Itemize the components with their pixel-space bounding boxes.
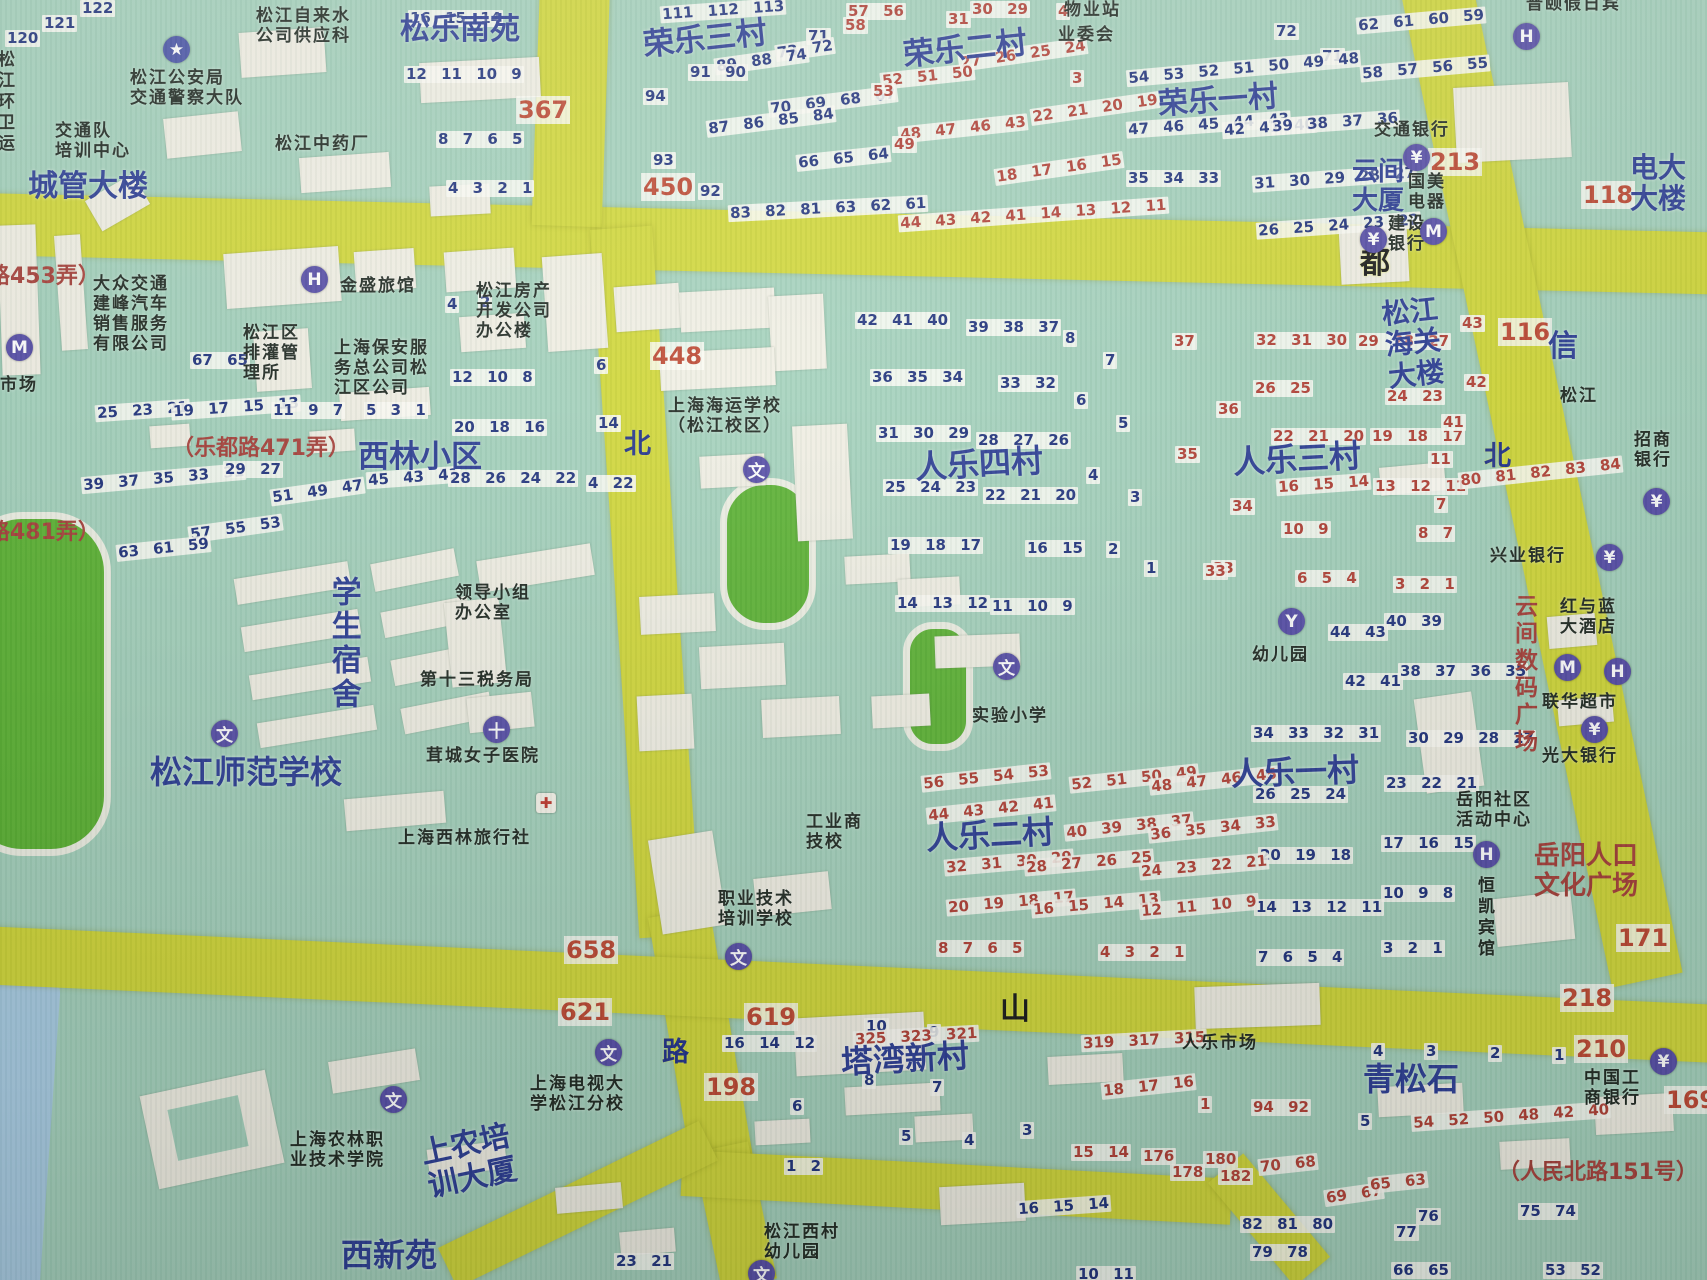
building-number: 33 32 bbox=[998, 375, 1058, 392]
building-number: 5 bbox=[1358, 1113, 1372, 1130]
lane-label: 路481弄） bbox=[0, 520, 100, 545]
street-number: 210 bbox=[1574, 1035, 1628, 1063]
building-number: 1 2 bbox=[784, 1158, 823, 1175]
building-number: 32 31 30 bbox=[1254, 332, 1349, 349]
building-number: 11 9 7 bbox=[271, 402, 345, 419]
facility-label: 职业技术 培训学校 bbox=[718, 889, 794, 929]
facility-label: 松江房产 开发公司 办公楼 bbox=[476, 281, 552, 341]
building-number: 41 bbox=[1441, 414, 1466, 431]
building bbox=[637, 694, 695, 752]
building-number: 37 bbox=[1172, 333, 1197, 350]
building-number: 30 29 bbox=[970, 1, 1030, 18]
bank-icon: ¥ bbox=[1650, 1048, 1677, 1075]
place-label: 西新苑 bbox=[341, 1238, 437, 1274]
building-number: 94 92 bbox=[1251, 1099, 1311, 1116]
road-name-label: 路 bbox=[662, 1030, 689, 1069]
building-number: 34 bbox=[1230, 498, 1255, 515]
bank-icon: ¥ bbox=[1360, 226, 1387, 253]
place-label: 塔湾新村 bbox=[840, 1039, 970, 1081]
place-label: 信 bbox=[1548, 330, 1578, 364]
building-number: 15 14 bbox=[1071, 1144, 1131, 1161]
building-number: 43 bbox=[1460, 315, 1485, 332]
facility-label: 松江环卫运 bbox=[0, 50, 14, 155]
street-number: 619 bbox=[744, 1003, 798, 1031]
street-number: 198 bbox=[704, 1073, 758, 1101]
facility-label: 松江区 排灌管 理所 bbox=[243, 323, 300, 383]
building-number: 4 3 2 1 bbox=[1098, 944, 1186, 961]
building bbox=[648, 831, 727, 935]
hotel-icon: H bbox=[1473, 841, 1500, 868]
building-number: 49 bbox=[892, 136, 917, 153]
building-number: 36 bbox=[1216, 401, 1241, 418]
facility-label: 市场 bbox=[0, 375, 38, 395]
place-label: 松江 海关 大楼 bbox=[1380, 293, 1446, 392]
building-number: 8 7 6 5 bbox=[936, 940, 1024, 957]
building-number: 48 47 46 43 bbox=[897, 113, 1028, 143]
building-number: 7 bbox=[1434, 496, 1448, 513]
building-number: 3 bbox=[1128, 489, 1142, 506]
place-label: 人乐三村 bbox=[1232, 439, 1362, 481]
building-number: 18 17 16 15 bbox=[993, 151, 1124, 185]
building-number: 4 bbox=[1371, 1043, 1385, 1060]
hotel-icon: H bbox=[301, 266, 328, 293]
facility-label: 红与蓝 大酒店 bbox=[1560, 597, 1617, 637]
building-number: 4 bbox=[962, 1132, 976, 1149]
building-number: 20 18 16 bbox=[452, 419, 547, 436]
facility-label: 领导小组 办公室 bbox=[455, 583, 531, 623]
building-number: 56 55 54 53 bbox=[920, 762, 1051, 792]
place-label: 电大 大楼 bbox=[1630, 152, 1686, 215]
building-number: 3 2 1 bbox=[1381, 940, 1445, 957]
facility-label: 恒凯宾馆 bbox=[1474, 876, 1494, 960]
building-number: 7 bbox=[1103, 352, 1117, 369]
building-number: 93 bbox=[651, 152, 676, 169]
facility-label: 国美 电器 bbox=[1408, 172, 1446, 212]
kindergarten-icon: Y bbox=[1278, 608, 1305, 635]
building-number: 76 bbox=[1416, 1208, 1441, 1225]
building-number: 16 14 12 bbox=[722, 1035, 817, 1052]
building-number: 14 13 12 bbox=[895, 595, 990, 612]
building-number: 4 bbox=[445, 296, 459, 313]
building-number: 14 13 12 11 bbox=[1254, 899, 1384, 916]
building-number: 19 18 17 bbox=[888, 537, 983, 554]
metro-icon: M bbox=[6, 334, 33, 361]
building-number: 53 52 bbox=[1543, 1262, 1603, 1279]
building-number: 7 6 5 4 bbox=[1256, 949, 1344, 966]
building bbox=[163, 111, 242, 159]
building-number: 70 68 bbox=[1257, 1153, 1318, 1176]
building-number: 91 90 bbox=[688, 64, 748, 81]
building-number: 75 74 bbox=[1518, 1203, 1578, 1220]
facility-label: 上海西林旅行社 bbox=[398, 828, 531, 848]
building bbox=[614, 283, 682, 332]
building-number: 51 49 47 bbox=[269, 476, 365, 506]
facility-label: 金盛旅馆 bbox=[340, 276, 416, 296]
culture-school-icon: 文 bbox=[993, 653, 1020, 680]
facility-label: 上海电视大 学松江分校 bbox=[530, 1074, 625, 1114]
building-number: 11 bbox=[1428, 451, 1453, 468]
road-name-label: 北 bbox=[624, 422, 651, 461]
building-number: 4 3 2 1 bbox=[446, 180, 534, 197]
street-number: 169 bbox=[1664, 1086, 1707, 1114]
facility-label: 松江自来水 公司供应科 bbox=[256, 6, 351, 46]
hospital-icon: 十 bbox=[483, 716, 510, 743]
street-number: 218 bbox=[1560, 984, 1614, 1012]
building-number: 121 bbox=[42, 15, 77, 32]
street-number: 118 bbox=[1581, 181, 1635, 209]
building-number: 6 5 4 bbox=[1295, 570, 1359, 587]
place-label: 荣乐二村 bbox=[902, 26, 1029, 73]
building-number: 3 2 1 bbox=[1393, 576, 1457, 593]
building-number: 17 16 15 bbox=[1381, 835, 1476, 852]
building bbox=[871, 694, 931, 729]
place-label: 松江师范学校 bbox=[150, 755, 342, 791]
place-label: 青松石 bbox=[1363, 1062, 1459, 1098]
facility-label: 联华超市 bbox=[1542, 692, 1618, 712]
lane-label: 路453弄） bbox=[0, 264, 100, 289]
bank-icon: ¥ bbox=[1581, 716, 1608, 743]
culture-school-icon: 文 bbox=[748, 1260, 775, 1280]
building-number: 20 19 18 bbox=[1258, 847, 1353, 864]
place-label: 城管大楼 bbox=[28, 170, 148, 204]
building bbox=[1194, 983, 1320, 1029]
building-number: 67 65 bbox=[190, 352, 250, 369]
building bbox=[792, 424, 853, 542]
building-number: 1 bbox=[1552, 1047, 1566, 1064]
facility-label: 业委会 bbox=[1058, 25, 1115, 45]
building-number: 58 bbox=[843, 17, 868, 34]
building-number: 92 bbox=[698, 183, 723, 200]
building-number: 63 61 59 bbox=[115, 535, 211, 561]
building-number: 2 bbox=[1106, 541, 1120, 558]
building-number: 4 22 bbox=[586, 475, 636, 492]
facility-label: 松江 bbox=[1560, 386, 1598, 406]
facility-label: 上海农林职 业技术学院 bbox=[290, 1130, 385, 1170]
building-number: 65 63 bbox=[1367, 1171, 1428, 1194]
building-number: 13 12 11 bbox=[1373, 478, 1468, 495]
street-number: 621 bbox=[558, 998, 612, 1026]
facility-label: 物业站 bbox=[1064, 0, 1121, 20]
building-number: 2 bbox=[1488, 1045, 1502, 1062]
building-number: 122 bbox=[80, 0, 115, 17]
street-number: 116 bbox=[1498, 318, 1552, 346]
building-number: 5 bbox=[899, 1128, 913, 1145]
building-number: 8 7 bbox=[1416, 525, 1455, 542]
building bbox=[844, 1083, 940, 1116]
building-number: 23 21 bbox=[614, 1253, 674, 1270]
building-number: 10 9 8 bbox=[1381, 885, 1455, 902]
building-number: 10 11 bbox=[1076, 1266, 1136, 1280]
building-number: 72 bbox=[1274, 23, 1299, 40]
building bbox=[679, 288, 776, 333]
building-number: 44 43 bbox=[1328, 624, 1388, 641]
facility-label: 招商 银行 bbox=[1634, 430, 1672, 470]
building-number: 1 bbox=[1144, 560, 1158, 577]
building-number: 182 bbox=[1218, 1168, 1253, 1185]
bank-icon: ¥ bbox=[1596, 544, 1623, 571]
building bbox=[699, 643, 786, 689]
lane-label: （乐都路471弄） bbox=[172, 436, 350, 461]
building bbox=[344, 791, 446, 832]
police-badge-icon: ★ bbox=[163, 36, 190, 63]
building-number: 31 30 29 bbox=[876, 425, 971, 442]
culture-school-icon: 文 bbox=[595, 1039, 622, 1066]
sports-field-west bbox=[0, 512, 111, 856]
building bbox=[370, 548, 459, 592]
building-number: 40 39 bbox=[1384, 613, 1444, 630]
building-number: 5 bbox=[1116, 415, 1130, 432]
street-number: 658 bbox=[564, 936, 618, 964]
street-number: 448 bbox=[650, 342, 704, 370]
building-number: 94 bbox=[643, 88, 668, 105]
facility-label: 实验小学 bbox=[972, 706, 1048, 726]
lane-label: （人民北路151号） bbox=[1498, 1160, 1698, 1185]
facility-label: 松江公安局 交通警察大队 bbox=[130, 68, 244, 108]
facility-label: 上海海运学校 （松江校区） bbox=[668, 396, 782, 436]
building bbox=[768, 294, 827, 372]
facility-label: 普颐假日宾 bbox=[1526, 0, 1621, 14]
culture-school-icon: 文 bbox=[380, 1086, 407, 1113]
culture-school-icon: 文 bbox=[211, 720, 238, 747]
building-number: 3 bbox=[1070, 70, 1084, 87]
building-number: 82 81 80 bbox=[1240, 1216, 1335, 1233]
building-number: 35 bbox=[1175, 446, 1200, 463]
building bbox=[754, 1119, 810, 1146]
building-number: 33 bbox=[1203, 563, 1228, 580]
building bbox=[299, 152, 391, 193]
place-label: 人乐四村 bbox=[914, 444, 1044, 486]
building-number: 42 bbox=[1464, 374, 1489, 391]
street-number: 450 bbox=[641, 173, 695, 201]
facility-label: 茸城女子医院 bbox=[426, 746, 540, 766]
facility-label: 工业商 技校 bbox=[806, 812, 863, 852]
building-number: 8 7 6 5 bbox=[436, 131, 524, 148]
river bbox=[0, 970, 61, 1280]
culture-school-icon: 文 bbox=[743, 456, 770, 483]
building-number: 26 25 bbox=[1253, 380, 1313, 397]
facility-label: 光大银行 bbox=[1542, 746, 1618, 766]
building-number: 6 bbox=[594, 357, 608, 374]
building-number: 180 bbox=[1203, 1151, 1238, 1168]
place-label: 人乐一村 bbox=[1230, 753, 1359, 793]
culture-school-icon: 文 bbox=[725, 943, 752, 970]
place-label: 西林小区 bbox=[358, 440, 482, 475]
place-label: 学生宿舍 bbox=[326, 576, 360, 712]
facility-label: 松江中药厂 bbox=[275, 134, 370, 154]
place-label: 云间 大厦 bbox=[1352, 158, 1404, 216]
lane-label: 云间数码广场 bbox=[1510, 594, 1536, 756]
metro-icon: M bbox=[1554, 654, 1581, 681]
building-number: 66 65 64 bbox=[795, 145, 891, 171]
building-number: 35 34 33 bbox=[1126, 170, 1221, 187]
hotel-icon: H bbox=[1513, 23, 1540, 50]
hotel-icon: H bbox=[1604, 658, 1631, 685]
building-number: 3 bbox=[1020, 1122, 1034, 1139]
building-number: 42 41 bbox=[1343, 673, 1403, 690]
building-number: 6 bbox=[790, 1098, 804, 1115]
building-number: 22 21 20 bbox=[983, 487, 1078, 504]
building-number: 14 bbox=[596, 415, 621, 432]
building-number: 29 27 bbox=[223, 461, 283, 478]
building-number: 5 3 1 bbox=[364, 402, 428, 419]
building bbox=[939, 1183, 1026, 1225]
place-label: 松乐南苑 bbox=[400, 13, 520, 47]
facility-label: 中国工 商银行 bbox=[1584, 1068, 1641, 1108]
building-number: 39 37 35 33 31 bbox=[81, 463, 247, 494]
building-number: 11 10 9 bbox=[990, 598, 1075, 615]
facility-label: 交通队 培训中心 bbox=[55, 121, 131, 161]
map-canvas: 城管大楼松乐南苑荣乐三村荣乐二村荣乐一村西林小区学生宿舍松江师范学校人乐四村人乐… bbox=[0, 0, 1707, 1280]
building-number: 77 bbox=[1394, 1224, 1419, 1241]
red-cross-icon: ✚ bbox=[536, 793, 556, 813]
building-number: 34 33 32 31 bbox=[1251, 725, 1381, 742]
street-number: 171 bbox=[1616, 924, 1670, 952]
building-number: 4 bbox=[1086, 467, 1100, 484]
building-number: 12 11 10 9 bbox=[404, 66, 524, 83]
place-label: 上农培 训大厦 bbox=[418, 1119, 520, 1203]
building-number: 42 41 40 bbox=[855, 312, 950, 329]
building-number: 38 37 36 35 bbox=[1398, 663, 1528, 680]
facility-label: 交通银行 bbox=[1374, 120, 1450, 140]
building-number: 31 bbox=[946, 11, 971, 28]
building-number: 178 bbox=[1170, 1164, 1205, 1181]
facility-label: 岳阳社区 活动中心 bbox=[1456, 790, 1532, 830]
road-name-label: 北 bbox=[1484, 434, 1511, 473]
metro-icon: M bbox=[1420, 218, 1447, 245]
bank-icon: ¥ bbox=[1643, 488, 1670, 515]
building-number: 7 bbox=[930, 1079, 944, 1096]
street-number: 367 bbox=[516, 96, 570, 124]
building bbox=[761, 696, 841, 738]
facility-label: 上海保安服 务总公司松 江区公司 bbox=[334, 338, 429, 398]
place-label: 人乐二村 bbox=[925, 815, 1055, 857]
building-number: 12 10 8 bbox=[450, 369, 535, 386]
building bbox=[328, 1048, 420, 1093]
facility-label: 松江西村 幼儿园 bbox=[764, 1222, 840, 1262]
building-number: 16 15 bbox=[1025, 540, 1085, 557]
building-number: 36 35 34 bbox=[870, 369, 965, 386]
facility-label: 人乐市场 bbox=[1182, 1033, 1258, 1053]
building-number: 24 23 22 21 bbox=[1139, 852, 1270, 880]
building-number: 79 78 bbox=[1250, 1244, 1310, 1261]
building-number: 6 bbox=[1074, 392, 1088, 409]
building-number: 120 bbox=[5, 30, 40, 47]
building-number: 10 9 bbox=[1281, 521, 1331, 538]
building bbox=[639, 593, 716, 635]
building-number: 1 bbox=[1198, 1096, 1212, 1113]
building-number: 8 bbox=[1063, 330, 1077, 347]
building-number: 3 bbox=[1424, 1043, 1438, 1060]
building-number: 66 65 bbox=[1391, 1262, 1451, 1279]
road-name-label: 山 bbox=[1000, 984, 1030, 1028]
facility-label: 兴业银行 bbox=[1490, 546, 1566, 566]
facility-label: 大众交通 建峰汽车 销售服务 有限公司 bbox=[93, 274, 169, 354]
bank-icon: ¥ bbox=[1403, 144, 1430, 171]
facility-label: 幼儿园 bbox=[1252, 645, 1309, 665]
lane-label: 岳阳人口 文化广场 bbox=[1534, 842, 1638, 902]
facility-label: 第十三税务局 bbox=[420, 670, 534, 690]
building-number: 39 38 37 bbox=[966, 319, 1061, 336]
building-number: 53 bbox=[871, 83, 896, 100]
